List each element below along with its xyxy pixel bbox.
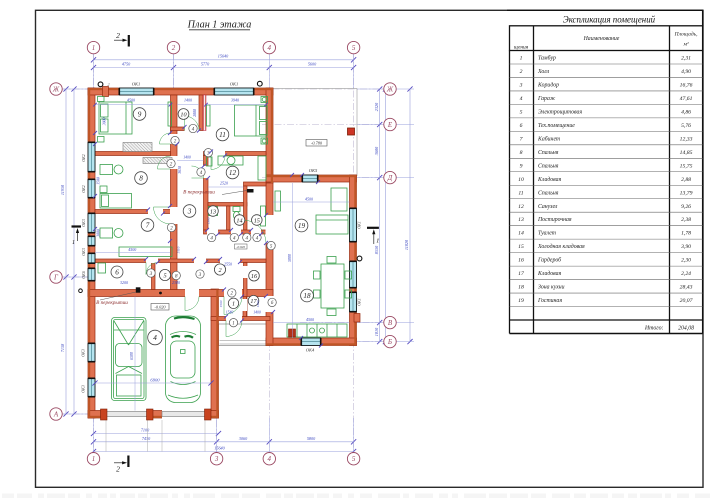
svg-text:3940: 3940 xyxy=(231,98,239,103)
svg-text:14: 14 xyxy=(518,231,524,237)
svg-text:15,75: 15,75 xyxy=(680,163,693,169)
svg-text:19: 19 xyxy=(518,298,524,304)
svg-text:47,61: 47,61 xyxy=(680,96,693,102)
svg-text:Электрощитовая: Электрощитовая xyxy=(538,109,582,115)
svg-text:5600: 5600 xyxy=(308,61,317,66)
svg-text:12: 12 xyxy=(518,204,524,210)
svg-text:ОК1: ОК1 xyxy=(132,82,141,87)
svg-text:ОК2: ОК2 xyxy=(81,185,86,193)
svg-text:18: 18 xyxy=(518,285,524,291)
svg-text:1500: 1500 xyxy=(219,300,223,307)
svg-text:Ж: Ж xyxy=(52,85,60,93)
svg-text:1: 1 xyxy=(72,239,75,246)
svg-text:3,90: 3,90 xyxy=(680,244,691,250)
svg-text:28,43: 28,43 xyxy=(680,285,693,291)
svg-text:ОК2: ОК2 xyxy=(81,154,86,162)
svg-text:2: 2 xyxy=(116,31,120,40)
svg-text:4,86: 4,86 xyxy=(681,109,691,115)
svg-text:3: 3 xyxy=(214,455,219,463)
svg-text:4750: 4750 xyxy=(122,61,131,66)
svg-text:1400: 1400 xyxy=(253,311,261,315)
svg-text:Кабинет: Кабинет xyxy=(537,135,560,142)
svg-text:7: 7 xyxy=(146,221,150,229)
svg-text:1: 1 xyxy=(232,301,235,308)
svg-text:1: 1 xyxy=(92,44,96,52)
svg-text:Зона кухни: Зона кухни xyxy=(538,285,565,291)
svg-text:В: В xyxy=(388,319,393,327)
svg-text:А: А xyxy=(53,410,59,418)
svg-text:В перекрытии: В перекрытии xyxy=(96,300,128,306)
svg-text:3600: 3600 xyxy=(374,146,379,155)
svg-text:Е: Е xyxy=(387,121,393,129)
svg-text:16: 16 xyxy=(251,273,258,280)
svg-text:12,33: 12,33 xyxy=(680,136,693,142)
svg-text:204,08: 204,08 xyxy=(678,324,694,331)
svg-text:2,31: 2,31 xyxy=(681,56,691,62)
svg-text:Гостиная: Гостиная xyxy=(537,298,562,304)
svg-text:5000: 5000 xyxy=(287,254,292,262)
svg-text:Санузел: Санузел xyxy=(538,204,558,210)
svg-text:8550: 8550 xyxy=(374,245,379,254)
svg-text:3630: 3630 xyxy=(178,166,182,174)
svg-text:20,07: 20,07 xyxy=(680,298,694,304)
svg-text:4,90: 4,90 xyxy=(681,69,691,75)
svg-text:5770: 5770 xyxy=(201,61,210,66)
svg-text:Холл: Холл xyxy=(537,69,550,75)
svg-text:Спальня: Спальня xyxy=(538,150,559,156)
svg-text:11820: 11820 xyxy=(404,239,409,250)
svg-text:ОК4: ОК4 xyxy=(306,348,315,353)
svg-text:11: 11 xyxy=(219,131,226,139)
svg-text:Площадь,: Площадь, xyxy=(674,31,699,38)
svg-text:В перекрытии: В перекрытии xyxy=(183,190,215,196)
svg-text:ОК6: ОК6 xyxy=(81,271,86,279)
svg-text:2: 2 xyxy=(520,69,523,75)
svg-text:4500: 4500 xyxy=(127,98,135,103)
svg-text:3: 3 xyxy=(187,207,192,215)
svg-text:14,85: 14,85 xyxy=(680,150,693,156)
svg-text:16,76: 16,76 xyxy=(680,82,693,88)
svg-text:-0.020: -0.020 xyxy=(236,245,245,249)
svg-text:Гардероб: Гардероб xyxy=(537,257,562,264)
svg-text:3060: 3060 xyxy=(239,436,248,441)
svg-text:5110: 5110 xyxy=(177,246,181,253)
svg-text:3: 3 xyxy=(519,82,523,88)
svg-text:5: 5 xyxy=(352,44,356,52)
svg-text:3200: 3200 xyxy=(120,280,128,285)
svg-text:Кладовая: Кладовая xyxy=(537,176,562,183)
svg-text:15: 15 xyxy=(254,217,260,224)
svg-text:Гараж: Гараж xyxy=(537,96,556,102)
svg-text:9,26: 9,26 xyxy=(681,204,691,210)
svg-text:Ж: Ж xyxy=(386,85,394,93)
svg-text:4500: 4500 xyxy=(306,317,314,322)
svg-text:4: 4 xyxy=(520,96,523,102)
svg-text:Наименование: Наименование xyxy=(583,36,620,42)
svg-text:м²: м² xyxy=(682,42,689,48)
svg-text:щения: щения xyxy=(514,44,529,50)
svg-text:4: 4 xyxy=(268,455,272,463)
svg-text:5: 5 xyxy=(520,109,523,115)
svg-text:2,38: 2,38 xyxy=(681,217,691,223)
svg-text:ОК3: ОК3 xyxy=(81,248,86,256)
svg-text:Тамбур: Тамбур xyxy=(538,55,556,62)
svg-text:ОК1: ОК1 xyxy=(357,221,362,229)
svg-text:4: 4 xyxy=(268,44,272,52)
svg-text:Холодная кладовая: Холодная кладовая xyxy=(537,243,585,250)
svg-text:6900: 6900 xyxy=(150,377,160,382)
svg-text:2: 2 xyxy=(172,44,176,52)
svg-text:5: 5 xyxy=(163,272,166,279)
svg-text:8: 8 xyxy=(139,174,143,182)
svg-text:1,78: 1,78 xyxy=(681,231,691,237)
svg-text:2: 2 xyxy=(218,267,221,274)
svg-text:4500: 4500 xyxy=(305,197,313,202)
svg-text:6: 6 xyxy=(520,123,523,129)
svg-text:5800: 5800 xyxy=(307,436,316,441)
svg-text:15640: 15640 xyxy=(218,54,229,59)
svg-text:15: 15 xyxy=(518,244,524,250)
svg-text:2320: 2320 xyxy=(374,102,379,111)
svg-text:ОК1: ОК1 xyxy=(357,298,362,306)
svg-text:7158: 7158 xyxy=(60,343,65,352)
svg-text:14: 14 xyxy=(236,217,242,224)
svg-text:Спальня: Спальня xyxy=(538,190,559,196)
svg-text:1400: 1400 xyxy=(183,156,191,160)
svg-text:6: 6 xyxy=(115,268,119,276)
svg-text:-0.780: -0.780 xyxy=(311,141,323,146)
svg-text:1540: 1540 xyxy=(226,311,234,315)
svg-text:2520: 2520 xyxy=(220,181,228,186)
svg-text:Постирочная: Постирочная xyxy=(537,217,572,223)
svg-text:-0.020: -0.020 xyxy=(154,305,166,310)
svg-text:ОК3: ОК3 xyxy=(81,219,86,227)
svg-text:15640: 15640 xyxy=(214,445,225,450)
svg-text:7100: 7100 xyxy=(141,428,150,433)
svg-text:Спальня: Спальня xyxy=(538,163,559,169)
svg-text:ОК5: ОК5 xyxy=(309,168,318,173)
svg-text:1: 1 xyxy=(232,322,235,327)
svg-text:1400: 1400 xyxy=(256,300,260,307)
svg-text:10: 10 xyxy=(518,177,524,183)
svg-text:19: 19 xyxy=(298,222,306,230)
svg-text:2000: 2000 xyxy=(193,109,197,117)
svg-text:13: 13 xyxy=(210,208,216,215)
svg-text:1: 1 xyxy=(92,455,96,463)
svg-text:11: 11 xyxy=(518,190,523,196)
svg-text:3000: 3000 xyxy=(97,229,101,237)
svg-text:5: 5 xyxy=(352,455,356,463)
svg-text:Итого:: Итого: xyxy=(644,325,664,331)
svg-text:6500: 6500 xyxy=(129,352,134,360)
svg-text:1500: 1500 xyxy=(97,177,101,185)
svg-text:9: 9 xyxy=(138,110,142,118)
svg-text:2,24: 2,24 xyxy=(681,271,691,277)
svg-text:Д: Д xyxy=(387,174,393,182)
svg-text:2380: 2380 xyxy=(172,280,180,285)
svg-text:План 1 этажа: План 1 этажа xyxy=(187,20,252,31)
svg-text:3000: 3000 xyxy=(102,118,106,126)
svg-text:Коридор: Коридор xyxy=(537,81,559,88)
svg-text:1300: 1300 xyxy=(207,217,211,224)
svg-text:13: 13 xyxy=(518,217,524,223)
svg-text:2,30: 2,30 xyxy=(681,258,691,264)
svg-text:1: 1 xyxy=(520,56,523,62)
svg-text:8: 8 xyxy=(520,150,523,156)
svg-text:11950: 11950 xyxy=(60,184,65,195)
svg-text:10: 10 xyxy=(180,111,187,118)
svg-text:Экспликация помещений: Экспликация помещений xyxy=(563,14,656,24)
svg-text:12: 12 xyxy=(229,169,237,177)
svg-text:4: 4 xyxy=(153,334,157,342)
svg-text:2,88: 2,88 xyxy=(681,177,691,183)
svg-text:Б: Б xyxy=(387,338,392,346)
svg-text:ОК3: ОК3 xyxy=(81,349,86,357)
svg-text:ОК3: ОК3 xyxy=(81,385,86,393)
svg-text:7430: 7430 xyxy=(142,436,151,441)
svg-text:2: 2 xyxy=(116,465,120,474)
svg-text:9: 9 xyxy=(520,163,523,169)
svg-text:18: 18 xyxy=(303,292,311,300)
svg-text:16: 16 xyxy=(518,258,524,264)
svg-text:1400: 1400 xyxy=(184,98,192,103)
svg-text:1810: 1810 xyxy=(374,327,379,336)
svg-text:2550: 2550 xyxy=(224,262,232,267)
svg-text:Тех.помещение: Тех.помещение xyxy=(538,123,575,129)
svg-text:1: 1 xyxy=(376,238,379,245)
svg-text:5,76: 5,76 xyxy=(681,123,691,129)
svg-text:4500: 4500 xyxy=(128,247,136,252)
svg-text:Кладовая: Кладовая xyxy=(537,270,562,277)
svg-text:Туалет: Туалет xyxy=(538,231,556,237)
svg-text:13,79: 13,79 xyxy=(680,190,693,196)
svg-text:ОК1: ОК1 xyxy=(230,82,239,87)
